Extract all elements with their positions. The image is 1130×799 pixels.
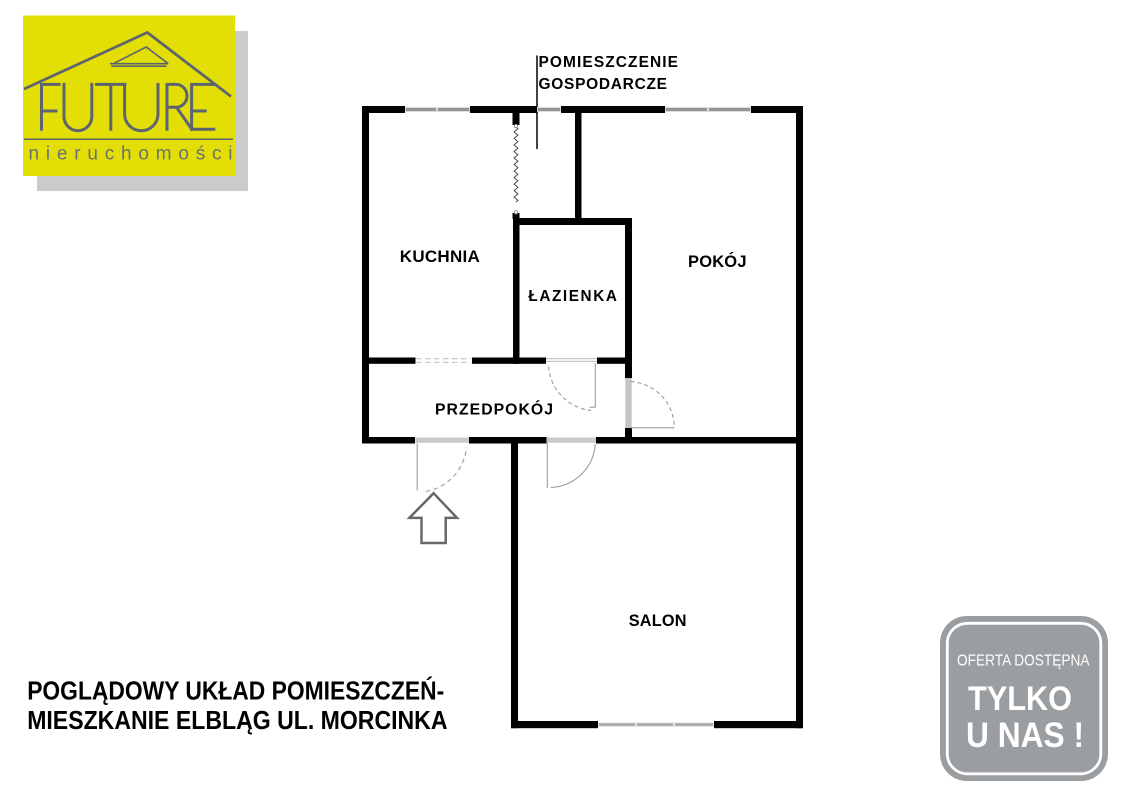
- svg-text:KUCHNIA: KUCHNIA: [400, 247, 480, 266]
- svg-text:U NAS !: U NAS !: [966, 716, 1084, 755]
- svg-text:ŁAZIENKA: ŁAZIENKA: [528, 288, 617, 305]
- svg-text:POGLĄDOWY UKŁAD POMIESZCZEŃ-: POGLĄDOWY UKŁAD POMIESZCZEŃ-: [27, 675, 444, 705]
- svg-text:nieruchomości: nieruchomości: [29, 144, 233, 165]
- svg-text:TYLKO: TYLKO: [968, 680, 1072, 718]
- svg-text:GOSPODARCZE: GOSPODARCZE: [539, 76, 668, 93]
- svg-text:OFERTA DOSTĘPNA: OFERTA DOSTĘPNA: [957, 653, 1090, 670]
- svg-text:POKÓJ: POKÓJ: [688, 252, 747, 271]
- svg-text:MIESZKANIE ELBLĄG UL. MORCINKA: MIESZKANIE ELBLĄG UL. MORCINKA: [27, 705, 447, 735]
- svg-text:POMIESZCZENIE: POMIESZCZENIE: [539, 54, 679, 71]
- svg-text:PRZEDPOKÓJ: PRZEDPOKÓJ: [435, 399, 553, 418]
- svg-text:SALON: SALON: [629, 612, 687, 630]
